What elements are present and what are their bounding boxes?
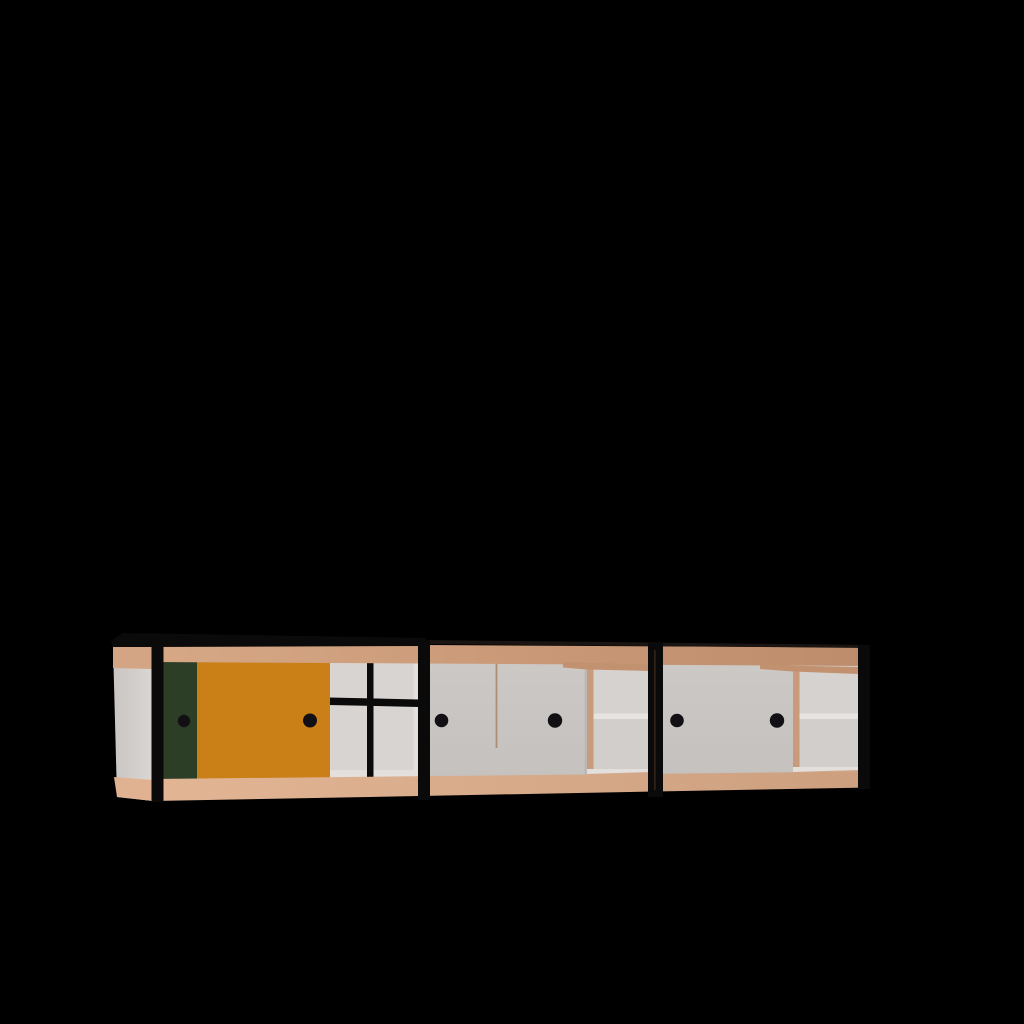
door-white-1 xyxy=(430,662,587,778)
post-right xyxy=(858,645,870,789)
handle-section3-left xyxy=(670,714,684,728)
background xyxy=(0,0,1024,1024)
section3-wood-divider xyxy=(793,667,800,773)
section3-shelf-lower xyxy=(800,719,859,768)
handle-green-door xyxy=(178,715,190,727)
section2-shelf-lower xyxy=(594,719,652,770)
side-panel xyxy=(113,646,153,801)
door-white-1-edge-shadow xyxy=(585,662,588,776)
section2-doors xyxy=(430,662,587,778)
section3-shelf-upper xyxy=(800,667,859,714)
section2-shelf-gap xyxy=(594,714,652,720)
section3-shelf-gap xyxy=(800,714,859,720)
render-viewport xyxy=(0,0,1024,1024)
post-mid-1 xyxy=(418,640,430,800)
door-white-seam xyxy=(496,662,498,748)
post-left xyxy=(152,640,164,802)
post-mid-2-gap xyxy=(654,650,655,790)
section2-shelf-upper xyxy=(594,665,652,714)
side-panel-top-wood xyxy=(113,646,153,669)
handle-section2-left xyxy=(435,714,449,728)
section1-right-sliver xyxy=(414,659,419,779)
handle-orange-door xyxy=(303,714,317,728)
sideboard-render xyxy=(0,0,1024,1024)
section3-interior xyxy=(793,664,858,779)
section2-wood-divider xyxy=(587,665,594,776)
section2-interior xyxy=(587,662,651,781)
handle-section2-right xyxy=(548,713,562,727)
section1-interior xyxy=(328,657,419,781)
shelf-cross-vertical xyxy=(367,657,374,781)
handle-section3-right xyxy=(770,713,784,727)
